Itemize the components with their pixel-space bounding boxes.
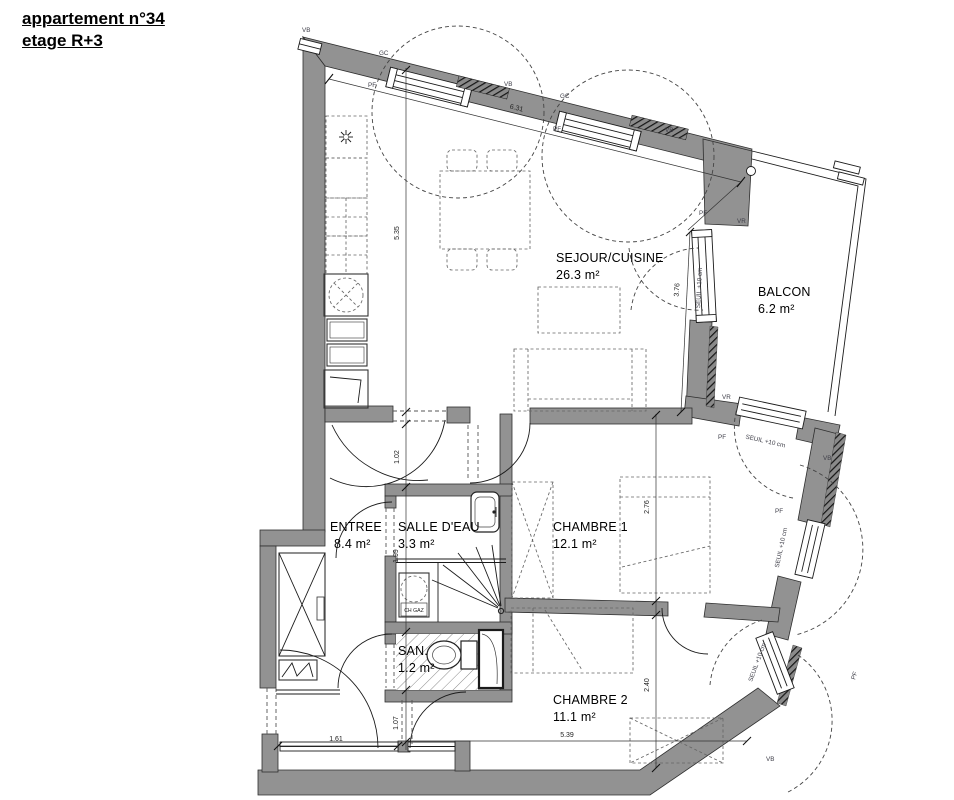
san-door-panel xyxy=(479,630,503,688)
dim-entry-width: 1.61 xyxy=(329,736,343,743)
wall-bath-left-b xyxy=(385,556,396,622)
dim-balcony-wall: 3.76 xyxy=(674,283,682,297)
hall-door-swing-2 xyxy=(332,425,428,480)
kitchen-sink xyxy=(324,274,368,316)
room-chambre2-area: 11.1 m² xyxy=(553,710,596,724)
label-pf-4: PF xyxy=(718,434,726,441)
window-chambre1-top xyxy=(736,397,806,429)
room-san-name: SAN. xyxy=(398,644,428,658)
entry-door-swing-1 xyxy=(280,650,378,748)
window-swing-chambre2-out xyxy=(788,655,832,792)
label-vr-2: VR xyxy=(722,394,731,401)
hall-door-swing-1 xyxy=(330,420,445,487)
room-chambre1-area: 12.1 m² xyxy=(553,537,597,551)
wall-top xyxy=(303,37,752,171)
chambre2-door-swing xyxy=(662,608,708,654)
label-vb-2: VB xyxy=(504,81,512,88)
room-san-area: 1.2 m² xyxy=(398,661,435,675)
chair xyxy=(487,249,517,270)
wall-entry-jamb-left xyxy=(262,734,278,772)
dim-hall-opening: 1.02 xyxy=(394,450,401,464)
chair xyxy=(487,150,517,171)
chambre1-wardrobe xyxy=(512,482,553,598)
dim-chambre2-depth: 2.40 xyxy=(644,678,651,692)
wall-entry-stub-right xyxy=(455,741,470,771)
dim-bath-width: 1.99 xyxy=(393,549,400,563)
floor-plan-svg: CH GAZ xyxy=(0,0,954,800)
dining-set xyxy=(440,150,530,270)
wall-corner-balcony xyxy=(703,139,752,226)
room-chambre1-name: CHAMBRE 1 xyxy=(553,520,628,534)
dim-passage: 1.07 xyxy=(393,716,400,730)
dining-table xyxy=(440,171,530,249)
room-balcon-area: 6.2 m² xyxy=(758,302,795,316)
water-heater: CH GAZ xyxy=(399,573,429,617)
label-vb-5: VB xyxy=(766,756,774,763)
balcony-railing xyxy=(747,151,867,416)
room-salle-deau-name: SALLE D'EAU xyxy=(398,520,480,534)
wall-h6-left xyxy=(505,598,668,616)
room-sejour-area: 26.3 m² xyxy=(556,268,600,282)
wall-san-left xyxy=(385,634,396,644)
wall-recess-left xyxy=(260,546,276,688)
wall-h1-right xyxy=(530,408,692,424)
label-vb-3: VB xyxy=(665,127,673,134)
wall-h1-mid xyxy=(447,407,470,423)
dim-chambre2-width: 5.39 xyxy=(560,732,574,739)
room-balcon-name: BALCON xyxy=(758,285,811,299)
room-entree-area: 8.4 m² xyxy=(334,537,371,551)
hob-symbol xyxy=(339,130,353,144)
coffee-table xyxy=(538,287,620,333)
window-chambre1-right xyxy=(795,520,825,579)
chambre2-bed xyxy=(511,608,633,673)
label-vr-1: VR xyxy=(737,218,746,225)
label-pf-5: PF xyxy=(775,508,783,515)
chambre1-bed xyxy=(620,477,710,593)
wall-recess-stub xyxy=(260,530,325,546)
chair xyxy=(447,249,477,270)
counter-end-unit xyxy=(324,370,368,408)
wall-left xyxy=(303,37,325,532)
dim-chambre1-depth: 2.76 xyxy=(644,500,651,514)
ch-gaz-label: CH GAZ xyxy=(404,608,424,614)
wall-h6-right xyxy=(704,603,780,622)
room-entree-name: ENTREE xyxy=(330,520,382,534)
label-gc-1: GC xyxy=(379,50,389,57)
label-pf-2: PF xyxy=(553,126,561,133)
dim-sejour-height: 5.35 xyxy=(394,226,401,240)
san-door-swing xyxy=(338,634,392,688)
label-seuil-1: SEUIL +10 cm xyxy=(745,434,786,450)
room-chambre2-name: CHAMBRE 2 xyxy=(553,693,628,707)
room-salle-deau-area: 3.3 m² xyxy=(398,537,435,551)
chair xyxy=(447,150,477,171)
label-seuil-2: SEUIL +10 cm xyxy=(774,527,789,568)
label-vb-1: VB xyxy=(302,27,310,34)
label-gc-2: GC xyxy=(560,93,570,100)
label-pf-6: PF xyxy=(850,671,859,681)
sofa xyxy=(514,349,646,411)
label-pf-1: PF xyxy=(368,82,376,89)
entree-shoe-rack xyxy=(279,660,317,680)
kitchen-counter xyxy=(324,116,368,408)
label-vb-4: VB xyxy=(823,455,831,462)
room-sejour-name: SEJOUR/CUISINE xyxy=(556,251,664,265)
label-pf-3: PF xyxy=(699,210,707,217)
balcony-column xyxy=(747,167,756,176)
entree-wardrobe xyxy=(279,553,325,656)
windows xyxy=(280,38,825,751)
